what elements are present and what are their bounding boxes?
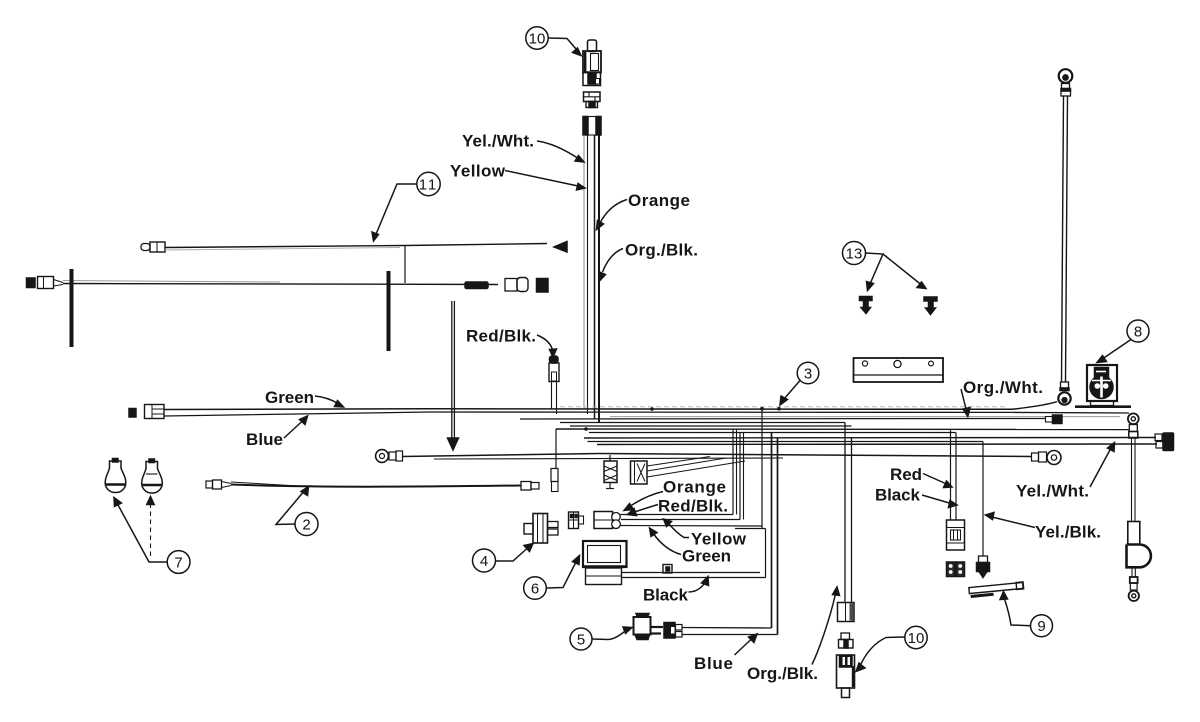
svg-text:Blue: Blue (694, 654, 733, 673)
svg-text:2: 2 (302, 517, 310, 534)
svg-text:Orange: Orange (663, 478, 726, 497)
svg-text:Black: Black (643, 586, 689, 605)
svg-text:3: 3 (804, 366, 812, 383)
svg-text:13: 13 (846, 246, 863, 263)
svg-text:4: 4 (480, 553, 488, 570)
svg-text:11: 11 (419, 177, 439, 194)
svg-text:5: 5 (577, 632, 585, 649)
svg-text:10: 10 (529, 31, 546, 48)
svg-text:Red/Blk.: Red/Blk. (658, 497, 728, 516)
svg-text:Orange: Orange (628, 191, 690, 210)
svg-text:Green: Green (682, 547, 731, 566)
svg-text:Org./Blk.: Org./Blk. (747, 664, 818, 683)
svg-text:Yel./Wht.: Yel./Wht. (462, 132, 534, 151)
svg-text:6: 6 (531, 581, 539, 598)
svg-text:7: 7 (174, 555, 182, 572)
svg-text:Blue: Blue (246, 430, 283, 449)
svg-text:Yel./Blk.: Yel./Blk. (1035, 523, 1101, 542)
svg-text:Red: Red (890, 465, 922, 484)
svg-text:8: 8 (1134, 324, 1142, 341)
svg-text:Org./Wht.: Org./Wht. (963, 378, 1043, 397)
svg-text:Yellow: Yellow (450, 162, 506, 181)
svg-text:Green: Green (265, 388, 314, 407)
svg-text:Black: Black (875, 486, 921, 505)
svg-text:Yel./Wht.: Yel./Wht. (1016, 482, 1089, 501)
svg-text:Org./Blk.: Org./Blk. (625, 241, 698, 260)
svg-text:10: 10 (908, 630, 925, 647)
svg-text:Red/Blk.: Red/Blk. (466, 327, 536, 346)
svg-text:9: 9 (1037, 618, 1045, 635)
